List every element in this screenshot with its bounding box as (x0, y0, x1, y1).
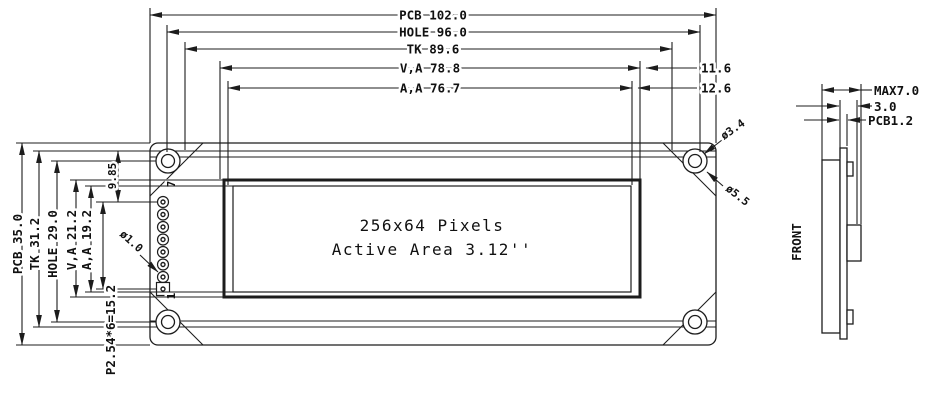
front-view: 256x64 Pixels Active Area 3.12'' 7 1 (10, 8, 752, 376)
dim-tk-width: TK 89.6 (407, 42, 460, 57)
dim-max-depth: MAX7.0 (874, 83, 919, 98)
mount-hole-top-right-inner (689, 155, 702, 168)
dim-pin-offset: 9.85 (106, 163, 119, 190)
dim-pcb-width: PCB 102.0 (399, 8, 467, 23)
mount-hole-bottom-right-inner (689, 316, 702, 329)
active-area (233, 186, 631, 292)
dim-aa-height: A,A 19.2 (79, 210, 94, 270)
dim-hole-width: HOLE 96.0 (399, 25, 467, 40)
outline-drawing-canvas: 256x64 Pixels Active Area 3.12'' 7 1 (0, 0, 935, 416)
front-face-label: FRONT (789, 223, 804, 261)
side-glass (822, 160, 840, 333)
side-view: MAX7.0 3.0 PCB1.2 FRONT (789, 83, 919, 339)
dim-va-right-margin: 11.6 (701, 61, 731, 76)
dim-pcb-height: PCB 35.0 (10, 214, 25, 274)
display-spec-line1: 256x64 Pixels (360, 216, 505, 235)
dim-hole-height: HOLE 29.0 (45, 210, 60, 278)
dim-pcb-thickness: PCB1.2 (868, 113, 913, 128)
display-spec-line2: Active Area 3.12'' (332, 240, 532, 259)
side-tab-bottom (847, 310, 853, 324)
dim-aa-width: A,A 76.7 (400, 81, 460, 96)
side-tab-top (847, 162, 853, 176)
side-connector (847, 225, 861, 261)
dim-tk-height: TK 31.2 (27, 218, 42, 271)
dim-pin-pitch: P2.54*6=15.2 (103, 285, 118, 375)
dim-va-height: V,A 21.2 (64, 210, 79, 270)
callout-mount-hole-pad: ø5.5 (723, 182, 752, 209)
callout-mount-hole-inner: ø3.4 (718, 116, 747, 142)
dim-aa-right-margin: 12.6 (701, 81, 731, 96)
callout-pin-hole: ø1.0 (117, 228, 145, 255)
side-pcb (840, 148, 847, 339)
pin-1-label: 1 (165, 292, 178, 299)
dim-va-width: V,A 78.8 (400, 61, 460, 76)
mount-hole-top-left-inner (162, 155, 175, 168)
dimension-drawing: 256x64 Pixels Active Area 3.12'' 7 1 (0, 0, 935, 416)
dim-module-depth: 3.0 (874, 99, 897, 114)
mount-hole-bottom-left-inner (162, 316, 175, 329)
